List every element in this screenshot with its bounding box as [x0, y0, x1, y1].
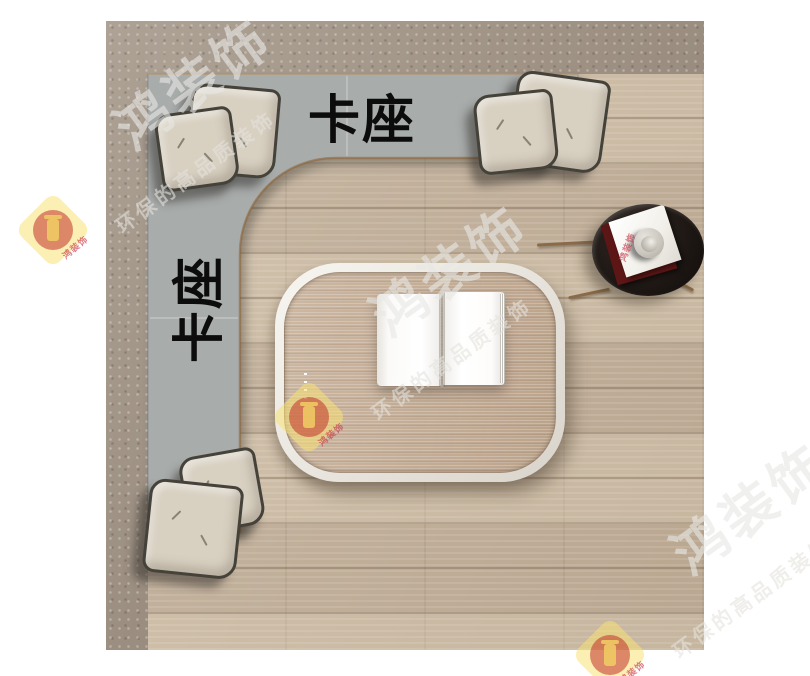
pillow: [153, 105, 241, 193]
book-spine: [439, 292, 445, 387]
pillow-crease: [200, 535, 208, 546]
bench-label-left: 卡座: [174, 255, 226, 363]
watermark-diamond-logo: [15, 192, 91, 268]
pillow: [141, 477, 244, 580]
furniture-layout-image: 卡座 卡座 鸿装饰鸿装饰环保的高品质装饰鸿装饰鸿装饰环保的高品质装饰鸿装饰鸿装饰…: [0, 0, 810, 676]
table-stitch-dots: [304, 373, 307, 407]
watermark-pillar-icon: [47, 219, 59, 241]
pillow-crease: [177, 137, 185, 148]
watermark-logo-circle: [33, 210, 73, 250]
watermark-brand-small: 鸿装饰: [616, 657, 647, 676]
room-top-view-photo: 卡座 卡座: [106, 21, 704, 650]
pillow-crease: [496, 119, 504, 130]
coffee-table: [275, 263, 565, 482]
pillow: [472, 88, 560, 176]
cup: [634, 228, 664, 258]
round-side-table: [592, 204, 704, 296]
pillow-crease: [171, 511, 181, 521]
pillow-crease: [239, 136, 247, 147]
book-page-right: [443, 292, 505, 385]
book-page-left: [377, 294, 441, 386]
pillow-crease: [565, 128, 572, 140]
coffee-table-top: [284, 272, 556, 473]
pillow-crease: [522, 135, 531, 145]
watermark-brand-small: 鸿装饰: [59, 232, 90, 261]
pillow-crease: [203, 152, 213, 162]
open-book: [377, 292, 507, 387]
bench-label-top: 卡座: [308, 95, 416, 147]
